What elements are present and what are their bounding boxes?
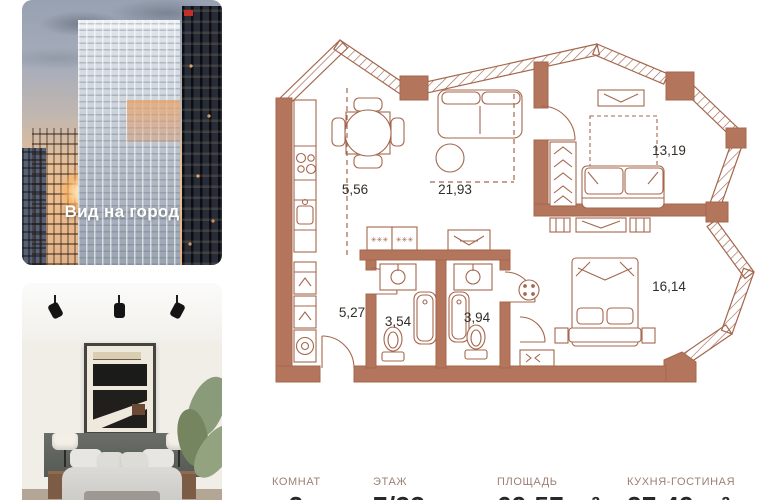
summary-rooms-label: КОМНАТ — [272, 477, 321, 488]
room-area-bathroom2: 3,94 — [464, 310, 491, 325]
city-view-photo[interactable]: Вид на город — [22, 0, 222, 265]
room-area-bedroom2: 16,14 — [652, 279, 686, 294]
room-area-bedroom1: 13,19 — [652, 143, 686, 158]
main-tower — [78, 20, 180, 265]
spotlight-icon — [48, 295, 62, 321]
summary-kitchen-living-label: КУХНЯ-ГОСТИНАЯ — [627, 477, 735, 488]
spotlight-icon — [112, 295, 126, 321]
summary-floor-value: 7/33 — [373, 492, 425, 500]
spotlight-icon — [170, 295, 184, 321]
floorplan-image[interactable]: ✳✳✳ ✳✳✳ 5,56 21,93 13,19 16,14 5,27 3,54… — [268, 28, 768, 446]
summary-rooms: КОМНАТ 2 — [272, 477, 321, 500]
summary-area-label: ПЛОЩАДЬ — [497, 477, 600, 488]
cabinet-glyph: ✳✳✳ — [371, 236, 389, 244]
tower-sign — [184, 10, 193, 16]
plant — [176, 375, 222, 495]
cabinet-glyph: ✳✳✳ — [396, 236, 414, 244]
summary-floor-label: ЭТАЖ — [373, 477, 425, 488]
room-area-bathroom1: 3,54 — [385, 314, 412, 329]
bed-bench — [84, 491, 160, 500]
summary-kitchen-living: КУХНЯ-ГОСТИНАЯ 27,49 м² — [627, 477, 735, 500]
summary-area: ПЛОЩАДЬ 69,57 м² — [497, 477, 600, 500]
bedroom-photo[interactable] — [22, 283, 222, 500]
summary-area-value: 69,57 м² — [497, 492, 600, 500]
summary-floor: ЭТАЖ 7/33 — [373, 477, 425, 500]
room-area-hallway: 5,27 — [339, 305, 365, 320]
room-area-kitchen: 5,56 — [342, 182, 368, 197]
lit-windows-layer — [182, 6, 222, 265]
room-area-living: 21,93 — [438, 182, 472, 197]
listing-page: { "gallery": { "city_photo": { "caption"… — [0, 0, 770, 500]
photo-caption: Вид на город — [22, 202, 222, 222]
summary-kitchen-living-value: 27,49 м² — [627, 492, 735, 500]
wall-art — [84, 343, 156, 435]
summary-rooms-value: 2 — [272, 492, 320, 500]
